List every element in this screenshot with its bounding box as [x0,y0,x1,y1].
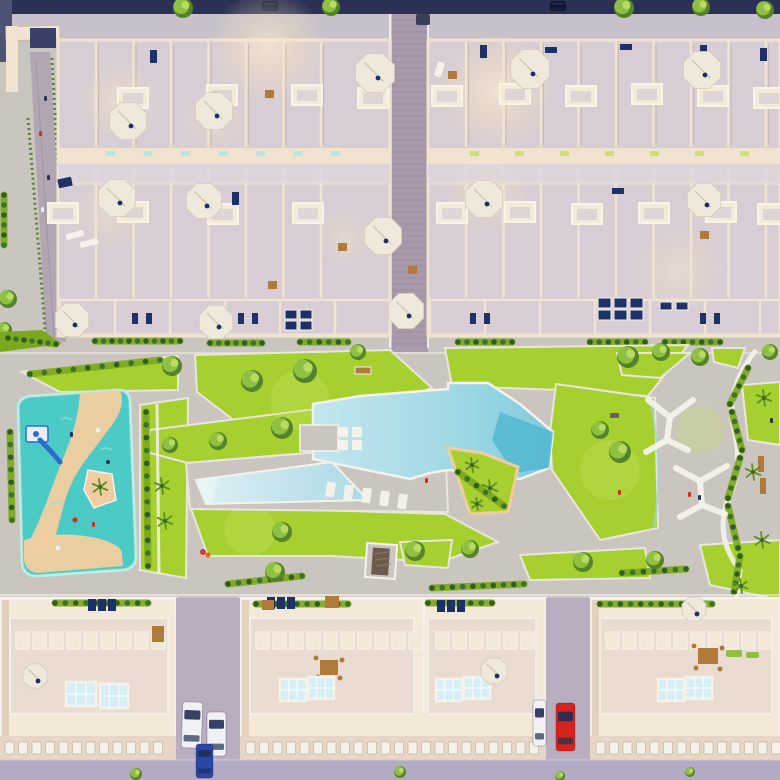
frontage-hedge [207,340,213,346]
frontage-hedge [662,339,723,345]
shade-a [2,600,9,758]
table [338,243,347,251]
solar-panel [98,599,106,611]
facade-window [677,742,686,754]
parked-car-red [558,738,573,745]
courtyard-tree [271,417,293,439]
frontage-hedge [671,339,677,345]
pedestrian [770,418,773,423]
patio-umbrella [703,73,708,78]
roof-hedge [135,600,141,606]
path-hedge [734,571,740,577]
courtyard-tree [281,525,289,533]
path-hedge [735,545,741,551]
south-hedge [450,584,456,590]
roof-hedge [73,600,79,606]
south-hedge [630,570,636,576]
patio-umbrella [376,76,381,81]
balcony-frames [409,632,422,649]
facade-window [100,742,109,754]
strip-hedge [144,435,150,441]
courtyard-tree [618,444,627,453]
facade-window [113,742,122,754]
terrace [577,209,597,220]
balcony-frames [657,632,670,649]
wedge-hedge [114,362,120,368]
balcony-frames [606,632,619,649]
spine-skylights [515,151,524,156]
facade-window [127,742,136,754]
service-spine [428,148,780,164]
pool-float [56,546,61,551]
patio-umbrella [129,124,134,129]
edge-hedge [1,192,7,198]
patio-door [470,313,476,324]
terrace [505,202,535,222]
street-bin [416,14,430,25]
balcony-frames [101,632,114,649]
frontage-hedge [216,340,222,346]
balcony-frames [487,632,500,649]
courtyard-tree [591,421,609,439]
solar-panel [614,298,627,308]
balcony-frames [50,632,63,649]
parked-car-white [184,710,200,720]
child [698,495,701,500]
road-plant [135,770,140,775]
island-shrubs [483,490,489,496]
south-hedge [439,585,445,591]
facade-window [381,742,390,754]
terrace [571,91,591,102]
island-shrubs [501,503,507,509]
island-shrubs [474,483,480,489]
courtyard-tree [414,544,422,552]
chair [314,656,319,661]
parked-car-blue [196,744,213,778]
road-plant [689,769,693,773]
slide-pool [33,431,39,437]
frontage-hedge [624,339,630,345]
wedge-hedge [157,357,163,363]
frontage-hedge [345,339,351,345]
balcony-frames [623,632,636,649]
wedge-hedge [42,370,48,376]
kids-water-park [7,390,136,576]
patio-umbrella [186,183,221,218]
path-hedge [728,514,734,520]
bench [355,367,371,374]
strip-hedge [143,422,149,428]
pedestrian [425,478,428,483]
facade-window [772,742,780,754]
solar-panel [447,600,455,612]
skylight-pool [436,679,462,701]
road-plant [394,766,406,778]
street-tree [756,1,774,19]
patio-umbrella [196,93,233,130]
palm-tree [760,538,764,542]
frontage-hedge [307,339,313,345]
solar-panel [660,302,672,310]
frontage-hedge [109,338,115,344]
pool-hedge [7,429,13,435]
solar-panel [108,599,116,611]
frontage-hedge [152,338,158,344]
solar-panel [300,321,312,330]
solar-panel [676,302,688,310]
patio-umbrella [356,54,395,93]
bottom-buildings [0,595,780,780]
courtyard-tree [169,439,175,445]
patio-umbrella [682,597,706,621]
south-hedge [460,584,466,590]
courtyard-tree [241,370,263,392]
balcony-frames [67,632,80,649]
frontage-hedge [135,338,141,344]
terrace [442,208,462,219]
courtyard-tree [265,562,285,582]
facade-window [19,742,28,754]
courtyard-tree [350,344,366,360]
wedge-hedge [85,365,91,371]
edge-hedge [21,337,27,343]
balcony-frames [674,632,687,649]
table [700,231,709,239]
wedge-hedge [128,360,134,366]
spine-skylights [695,151,704,156]
balcony-frames [436,632,449,649]
terrace [292,85,322,105]
path-hedge [737,455,743,461]
terrace [505,89,525,100]
facade-window [745,742,754,754]
courtyard-tree [162,437,178,453]
patio-door [252,313,258,324]
frontage-hedge [455,339,461,345]
roof-hedge [468,600,474,606]
pool-float [73,518,78,523]
south-hedge [432,584,524,588]
chair [718,667,723,672]
shade-c [592,600,599,758]
frontage-hedge [587,339,648,345]
wedge-hedge [71,367,77,373]
edge-hedge [45,340,51,346]
chair [694,666,699,671]
pedestrian [41,207,44,212]
frontage-hedge [169,338,175,344]
bed [760,48,767,61]
balcony-frames [33,632,46,649]
facade-window [596,742,605,754]
courtyard-tree [769,346,775,352]
patio-umbrella [36,679,41,684]
swim-up-platform [338,440,348,450]
roof-planter [746,652,759,658]
terrace [637,89,657,100]
shade-b [242,600,249,758]
solar-panel [598,310,611,320]
balcony-frames [273,632,286,649]
terrace [293,203,323,223]
frontage-hedge [297,339,303,345]
solar-panel [88,599,96,611]
pool-float [106,460,110,464]
spine-skylights [650,151,659,156]
table [268,281,277,289]
roof-hedge [479,600,485,606]
frontage-hedge [143,338,149,344]
patio-umbrella [110,103,147,140]
strip-hedge [143,409,151,569]
roof-hedge [658,601,664,607]
patio-door [132,313,138,324]
swim-up-platform [338,427,348,437]
courtyard-tree [293,359,317,383]
entry-wall [6,26,18,92]
patio-door [714,313,720,324]
scene-canvas [0,0,780,780]
bottom-road [0,760,780,780]
facade-window [59,742,68,754]
facade-window [354,742,363,754]
bench [610,413,619,418]
roof-hedge [125,600,131,606]
south-hedge [521,581,527,587]
roof-hedge [315,601,321,607]
patio-umbrella [485,202,490,207]
frontage-hedge [615,339,621,345]
pedestrian [44,96,47,101]
path-hedge [729,409,735,415]
frontage-hedge [717,339,723,345]
facade-window [503,742,512,754]
facade-window [758,742,767,754]
roof-hedge [425,600,431,606]
strip-hedge [145,538,151,544]
terrace [758,204,780,224]
patio-umbrella [511,50,550,89]
balcony-frames [470,632,483,649]
path-hedge [737,553,743,559]
south-hedge [673,567,679,573]
frontage-hedge [606,339,612,345]
balcony-frames [358,632,371,649]
bed [150,50,157,63]
courtyard-tree [250,373,259,382]
courtyard-tree [617,346,639,368]
patio-umbrella [466,181,503,218]
frontage-hedge [491,339,497,345]
terrace [763,209,780,220]
balcony-frames [742,632,755,649]
solar-panel [630,310,643,320]
parked-car-red [556,703,575,751]
courtyard-tree [209,432,227,450]
skylight-pool [66,682,96,706]
facade-window [704,742,713,754]
balcony-frames [453,632,466,649]
skylight-pool [686,677,712,699]
balcony-frames [392,632,405,649]
patio-umbrella [531,72,536,77]
path-hedge [745,365,751,371]
swim-up-platform [352,440,362,450]
courtyard-tree [217,435,224,442]
spine-skylights [560,151,569,156]
street-tree [182,1,190,9]
swimmer [70,432,73,437]
south-hedge [480,583,486,589]
facade-window [476,742,485,754]
roof-hedge [345,601,351,607]
balcony-frames [290,632,303,649]
facade-window [650,742,659,754]
courtyard-tree [280,420,289,429]
wedge-hedge [143,359,149,365]
lawn-east-edge [742,382,780,445]
frontage-hedge [509,339,515,345]
courtyard-tree [274,565,282,573]
path-hedge [727,401,733,407]
balcony-frames [84,632,97,649]
frontage-hedge [455,339,515,345]
solar-panel [437,600,445,612]
street-tree [623,1,631,9]
solar-panel [277,597,285,609]
road-plant [685,767,695,777]
road-plant [399,768,404,773]
courtyard-tree [762,344,778,360]
table [265,90,274,98]
pool-hedge [8,479,14,485]
pedestrian [47,175,50,180]
parked-car-dark [552,3,564,5]
courtyard-tree [573,552,593,572]
edge-hedge [1,212,7,218]
courtyard-tree [691,348,709,366]
path-hedge [733,535,739,541]
roof-hedge [648,601,654,607]
roof-hedge [628,601,634,607]
facade-window [368,742,377,754]
bed [612,188,624,194]
terrace [572,204,602,224]
parked-van-white [535,708,544,717]
solar-panel [630,298,643,308]
skylight-pool [658,679,684,701]
terrace [510,207,530,218]
edge-hedge [1,202,7,208]
parked-car-white [183,735,199,742]
south-hedge [641,569,647,575]
terrace [48,203,78,223]
facade-window [408,742,417,754]
swimmer [92,522,95,527]
facade-window [154,742,163,754]
balcony-frames [759,632,772,649]
parked-car-white [181,702,203,749]
parked-car-white [209,720,224,729]
solar-panel [598,298,611,308]
south-hedge [511,582,517,588]
patio-door [484,313,490,324]
solar-panel [287,597,295,609]
terrace [363,93,383,104]
table [325,596,339,608]
courtyard-tree [660,346,667,353]
palm-tree [739,584,743,588]
edge-hedge [37,339,43,345]
courtyard-tree [609,441,631,463]
edge-hedge [5,335,11,341]
balcony-frames [341,632,354,649]
path-hedge [741,374,747,380]
path-hedge [725,503,731,509]
patio-umbrella [99,180,136,217]
courtyard-tree [303,363,313,373]
pool-hedge [9,517,15,523]
patio-door [146,313,152,324]
facade-window [731,742,740,754]
south-hedge [236,580,242,586]
courtyard-tree [162,356,182,376]
frontage-hedge [699,339,705,345]
patio-umbrella [695,612,700,617]
frontage-hedge [326,339,332,345]
strip-hedge [145,512,151,518]
spine-skylights [256,151,265,156]
island-palm [470,463,474,467]
roof-hedge [52,600,58,606]
solar-panel [457,600,465,612]
solar-panel [285,321,297,330]
south-hedge [257,578,263,584]
facade-window [260,742,269,754]
pool-hedge [8,454,14,460]
facade-window [610,742,619,754]
terrace [644,208,664,219]
frontage-hedge [464,339,470,345]
patio-umbrella [481,658,507,684]
path-hedge [728,485,734,491]
frontage-hedge [681,339,687,345]
courtyard-tree [582,555,590,563]
balcony-frames [256,632,269,649]
flower-bed [200,549,206,555]
road-plant [130,768,142,780]
patio-umbrella [407,314,412,319]
parked-van-white [535,733,544,739]
terrace [437,203,467,223]
path-hedge [739,447,745,453]
frontage-hedge [160,338,166,344]
balcony-frames [118,632,131,649]
spine-skylights [144,151,153,156]
edge-hedge [1,192,7,248]
child [688,492,691,497]
solar-panel [285,310,297,319]
parked-car-dark [552,8,564,9]
parked-van-white [533,700,546,746]
facade-window [516,742,525,754]
frontage-hedge [633,339,639,345]
frontage-hedge [242,340,248,346]
terrace [639,203,669,223]
frontage-hedge [259,340,265,346]
facade-window [86,742,95,754]
